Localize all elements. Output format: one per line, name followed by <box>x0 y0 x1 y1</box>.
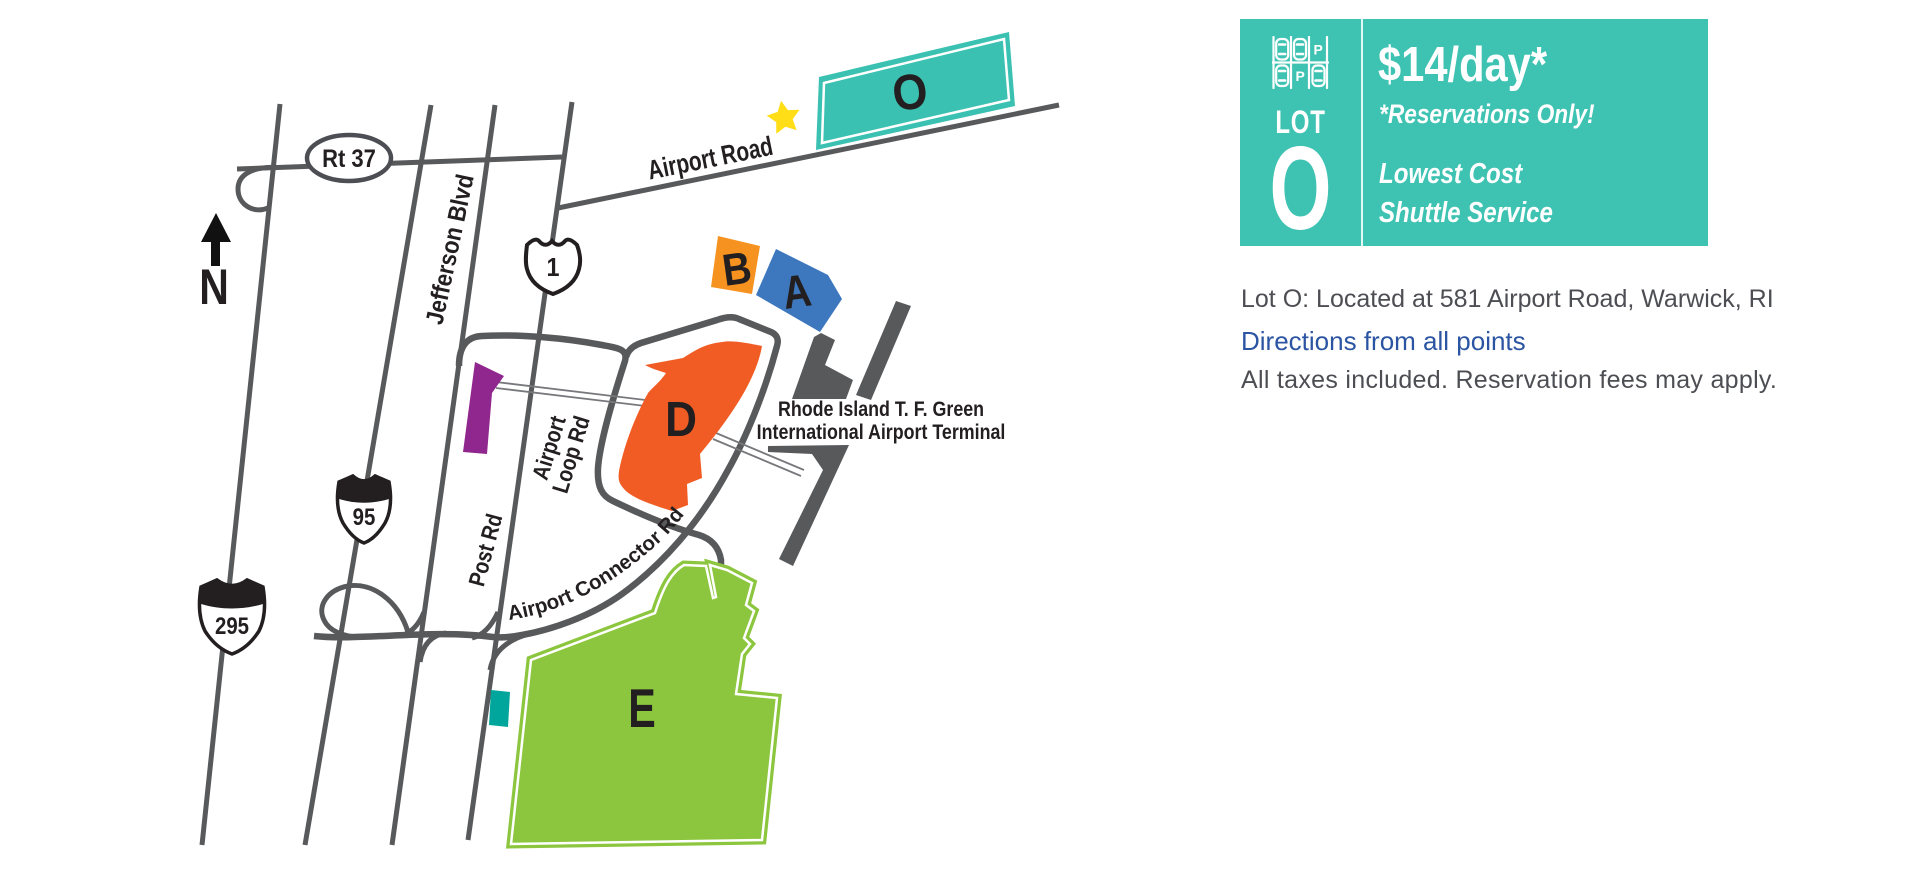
svg-text:P: P <box>1296 68 1305 84</box>
svg-text:295: 295 <box>215 612 249 639</box>
svg-text:Rt 37: Rt 37 <box>322 145 376 173</box>
svg-text:O: O <box>889 63 931 123</box>
svg-text:95: 95 <box>353 503 376 530</box>
svg-text:N: N <box>199 259 229 315</box>
svg-text:International Airport Terminal: International Airport Terminal <box>757 421 1006 445</box>
svg-text:D: D <box>665 392 697 447</box>
svg-text:Rhode Island T. F. Green: Rhode Island T. F. Green <box>778 398 984 422</box>
svg-text:1: 1 <box>546 254 559 282</box>
svg-text:Jefferson Blvd: Jefferson Blvd <box>420 172 479 327</box>
svg-text:P: P <box>1314 42 1323 58</box>
svg-text:Post Rd: Post Rd <box>464 511 508 589</box>
svg-text:E: E <box>628 678 656 739</box>
